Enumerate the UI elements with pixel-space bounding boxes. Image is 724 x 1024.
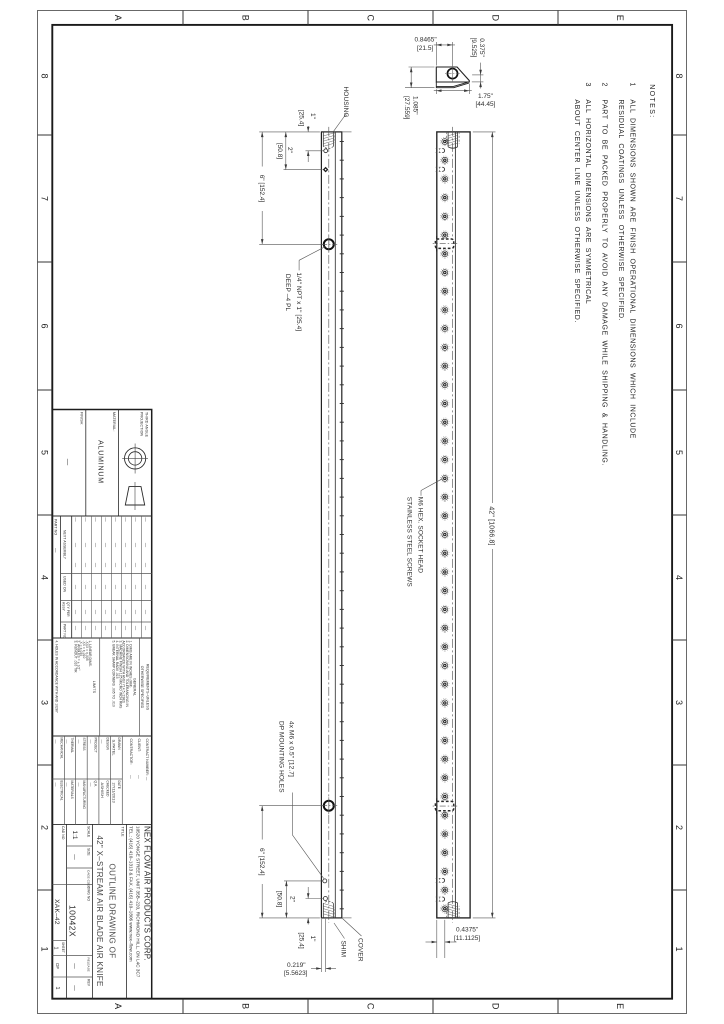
svg-text:RELEASE: RELEASE bbox=[87, 958, 91, 972]
svg-text:CLIENT:: CLIENT: bbox=[137, 739, 141, 753]
svg-text:—: — bbox=[77, 740, 82, 744]
svg-text:SIZE: SIZE bbox=[87, 848, 91, 856]
svg-text:LIMITS: LIMITS bbox=[92, 681, 96, 694]
svg-text:OTHERWISE SPECIFIED: OTHERWISE SPECIFIED bbox=[140, 666, 144, 709]
svg-text:0.219": 0.219" bbox=[287, 962, 306, 969]
svg-text:10042X: 10042X bbox=[68, 905, 78, 937]
svg-text:HOUSING: HOUSING bbox=[342, 87, 349, 118]
svg-text:42" X–STREAM AIR BLADE AIR KNI: 42" X–STREAM AIR BLADE AIR KNIFE bbox=[95, 835, 104, 986]
svg-text:C: C bbox=[365, 14, 375, 21]
svg-text:PART NO: PART NO bbox=[63, 624, 67, 639]
svg-text:D: D bbox=[490, 14, 500, 21]
svg-text:DATE: DATE bbox=[117, 781, 121, 789]
svg-text:3: 3 bbox=[40, 700, 50, 705]
svg-text:6" [152.4]: 6" [152.4] bbox=[258, 848, 265, 876]
svg-text:1.75": 1.75" bbox=[478, 93, 494, 100]
svg-text:1:1: 1:1 bbox=[71, 830, 78, 839]
svg-text:M6 HEX. SOCKET HEAD: M6 HEX. SOCKET HEAD bbox=[417, 497, 424, 573]
svg-text:7: 7 bbox=[674, 196, 684, 201]
svg-text:XAK–42: XAK–42 bbox=[53, 899, 60, 925]
svg-text:[25.4]: [25.4] bbox=[297, 932, 304, 948]
svg-text:1": 1" bbox=[309, 936, 316, 943]
svg-text:1: 1 bbox=[53, 946, 59, 949]
svg-text:ASSY: ASSY bbox=[62, 602, 66, 612]
svg-text:—: — bbox=[77, 783, 82, 787]
svg-text:CONTRACT NUMBER: —: CONTRACT NUMBER: — bbox=[145, 739, 149, 781]
svg-text:[9.525]: [9.525] bbox=[470, 38, 477, 58]
svg-text:0.375": 0.375" bbox=[478, 38, 485, 57]
svg-text:OUTLINE DRAWING OF: OUTLINE DRAWING OF bbox=[108, 864, 117, 959]
svg-text:—: — bbox=[137, 775, 141, 779]
svg-text:[50.8]: [50.8] bbox=[276, 143, 283, 159]
svg-text:THIRD ANGLE: THIRD ANGLE bbox=[145, 412, 149, 438]
svg-text:DP MOUNTING HOLES: DP MOUNTING HOLES bbox=[278, 721, 285, 793]
svg-text:1: 1 bbox=[40, 946, 50, 951]
svg-text:C: C bbox=[365, 1003, 375, 1010]
svg-text:ELECTRICAL: ELECTRICAL bbox=[59, 781, 63, 801]
svg-text:FINISH:: FINISH: bbox=[80, 412, 84, 425]
svg-text:3: 3 bbox=[674, 700, 684, 705]
svg-text:B: B bbox=[240, 15, 250, 21]
svg-text:SCALE: SCALE bbox=[87, 826, 91, 838]
svg-text:CONTRACTOR:: CONTRACTOR: bbox=[129, 739, 133, 765]
svg-text:[25.4]: [25.4] bbox=[297, 110, 304, 126]
svg-text:ABOUT CENTER LINE UNLESS OTHER: ABOUT CENTER LINE UNLESS OTHERWISE SPECI… bbox=[573, 99, 580, 322]
svg-text:—: — bbox=[65, 740, 70, 744]
svg-text:1: 1 bbox=[674, 946, 684, 951]
svg-text:2: 2 bbox=[600, 83, 607, 87]
svg-text:2": 2" bbox=[288, 896, 295, 903]
svg-text:—: — bbox=[129, 775, 133, 779]
svg-text:—: — bbox=[54, 740, 59, 744]
svg-text:PROJECTION: PROJECTION bbox=[140, 412, 144, 436]
svg-text:—: — bbox=[88, 783, 93, 787]
svg-text:3. RUNOUT .010 TIR: 3. RUNOUT .010 TIR bbox=[73, 641, 77, 674]
svg-text:—: — bbox=[71, 854, 77, 860]
svg-text:ASHISH: ASHISH bbox=[100, 783, 105, 798]
svg-text:1: 1 bbox=[629, 83, 636, 87]
svg-text:1.085": 1.085" bbox=[412, 96, 419, 115]
svg-text:—: — bbox=[54, 548, 59, 553]
svg-text:6" [152.4]: 6" [152.4] bbox=[258, 175, 265, 203]
svg-text:ALUMINUM: ALUMINUM bbox=[97, 440, 104, 484]
svg-text:6: 6 bbox=[674, 323, 684, 328]
svg-text:A: A bbox=[113, 1003, 123, 1009]
svg-text:2: 2 bbox=[674, 825, 684, 830]
svg-text:Q.A.: Q.A. bbox=[94, 781, 98, 788]
svg-text:4: 4 bbox=[40, 575, 50, 580]
svg-text:DRAWN: DRAWN bbox=[117, 738, 121, 751]
svg-text:7: 7 bbox=[40, 196, 50, 201]
svg-text:1: 1 bbox=[54, 986, 60, 989]
svg-text:0.8465": 0.8465" bbox=[415, 37, 438, 44]
svg-text:—: — bbox=[54, 783, 59, 787]
svg-text:PROJECT: PROJECT bbox=[94, 738, 98, 753]
svg-text:TEL.: (416) 410–1313 & FAX. (4: TEL.: (416) 410–1313 & FAX. (416) 410–18… bbox=[129, 826, 134, 962]
svg-text:—: — bbox=[65, 783, 70, 787]
svg-text:5: 5 bbox=[40, 450, 50, 455]
svg-text:10520 YONGE STREET, UNIT 35B–2: 10520 YONGE STREET, UNIT 35B–220, RICHMO… bbox=[136, 826, 141, 978]
svg-text:PART NO: PART NO bbox=[54, 519, 58, 535]
svg-text:STAINLESS STEEL SCREWS: STAINLESS STEEL SCREWS bbox=[406, 497, 413, 588]
svg-text:B: B bbox=[240, 1003, 250, 1009]
svg-text:PART TO BE PACKED PROPERLY TO: PART TO BE PACKED PROPERLY TO AVOID ANY … bbox=[600, 99, 607, 466]
svg-text:TITLE: TITLE bbox=[121, 827, 125, 838]
svg-text:SHIM: SHIM bbox=[340, 941, 347, 958]
svg-text:42" [1066.8]: 42" [1066.8] bbox=[488, 506, 495, 545]
svg-text:NEXT ASSEMBLY: NEXT ASSEMBLY bbox=[63, 530, 67, 560]
svg-text:ALL HORIZONTAL DIMENSIONS ARE: ALL HORIZONTAL DIMENSIONS ARE SYMMETRICA… bbox=[584, 99, 591, 304]
svg-text:E: E bbox=[615, 1003, 625, 1009]
svg-text:SHEET: SHEET bbox=[61, 942, 65, 953]
svg-text:CHECKED: CHECKED bbox=[105, 781, 109, 798]
svg-text:NOTES:: NOTES: bbox=[648, 84, 655, 118]
svg-text:REQUIREMENTS–UNLESS: REQUIREMENTS–UNLESS bbox=[145, 664, 149, 711]
svg-text:—: — bbox=[71, 963, 77, 969]
svg-text:6: 6 bbox=[40, 323, 50, 328]
svg-text:8: 8 bbox=[674, 73, 684, 78]
svg-text:4. HOLES IN ACCORDANCE WITH AN: 4. HOLES IN ACCORDANCE WITH AND 10287 bbox=[54, 641, 58, 713]
svg-text:—: — bbox=[88, 740, 93, 744]
svg-text:2": 2" bbox=[286, 147, 293, 154]
svg-text:[50.8]: [50.8] bbox=[276, 891, 283, 907]
svg-text:COVER: COVER bbox=[357, 938, 364, 962]
svg-text:DEEP –4 PL: DEEP –4 PL bbox=[284, 274, 291, 312]
svg-text:RESIDUAL COATINGS UNLESS OTHER: RESIDUAL COATINGS UNLESS OTHERWISE SPECI… bbox=[617, 99, 624, 321]
svg-text:4: 4 bbox=[674, 575, 684, 580]
svg-text:5. BREAK SHARP CORNERS .005 TO: 5. BREAK SHARP CORNERS .005 TO .010 bbox=[112, 641, 116, 707]
svg-text:S.PATEL: S.PATEL bbox=[112, 740, 117, 757]
svg-text:—: — bbox=[100, 740, 105, 744]
svg-text:CAD NO: CAD NO bbox=[61, 826, 65, 840]
svg-text:[27.559]: [27.559] bbox=[403, 96, 410, 120]
svg-text:DWG NO: DWG NO bbox=[87, 887, 91, 902]
svg-text:—: — bbox=[64, 459, 71, 466]
svg-text:1": 1" bbox=[309, 113, 316, 120]
svg-text:D: D bbox=[490, 1003, 500, 1010]
svg-text:1/4" NPT x 1" [25.4]: 1/4" NPT x 1" [25.4] bbox=[295, 272, 302, 331]
svg-text:2: 2 bbox=[40, 825, 50, 830]
svg-text:MATERIAL:: MATERIAL: bbox=[112, 412, 116, 432]
svg-text:MANUFACTURING: MANUFACTURING bbox=[82, 781, 86, 810]
svg-text:THERMAL: THERMAL bbox=[70, 738, 74, 754]
svg-text:A: A bbox=[113, 15, 123, 21]
svg-text:[44.45]: [44.45] bbox=[476, 101, 496, 108]
svg-text:E: E bbox=[615, 15, 625, 21]
svg-text:STRESS: STRESS bbox=[82, 738, 86, 751]
svg-text:[21.5]: [21.5] bbox=[417, 45, 433, 52]
svg-text:0.4375": 0.4375" bbox=[456, 927, 479, 934]
svg-text:—: — bbox=[71, 985, 77, 991]
svg-text:[11.1125]: [11.1125] bbox=[454, 935, 480, 942]
svg-text:USED ON: USED ON bbox=[63, 576, 67, 593]
svg-text:3: 3 bbox=[584, 83, 591, 87]
svg-text:DESIGN: DESIGN bbox=[105, 738, 109, 751]
svg-text:NEX FLOW AIR PRODUCTS CORP.: NEX FLOW AIR PRODUCTS CORP. bbox=[143, 826, 152, 961]
svg-text:MATERIALS: MATERIALS bbox=[70, 781, 74, 799]
svg-text:5: 5 bbox=[674, 450, 684, 455]
svg-text:MECHANICAL: MECHANICAL bbox=[59, 738, 63, 760]
svg-text:REV: REV bbox=[87, 979, 91, 987]
svg-text:OF: OF bbox=[55, 963, 60, 970]
svg-text:[5.5623]: [5.5623] bbox=[284, 970, 308, 977]
svg-text:8: 8 bbox=[40, 73, 50, 78]
svg-text:27/11/2013: 27/11/2013 bbox=[112, 783, 117, 804]
svg-text:ALL DIMENSIONS SHOWN ARE FINIS: ALL DIMENSIONS SHOWN ARE FINISH OPERATIO… bbox=[629, 99, 636, 438]
svg-text:4x M6 x 0.5" [12.7]: 4x M6 x 0.5" [12.7] bbox=[288, 721, 295, 777]
